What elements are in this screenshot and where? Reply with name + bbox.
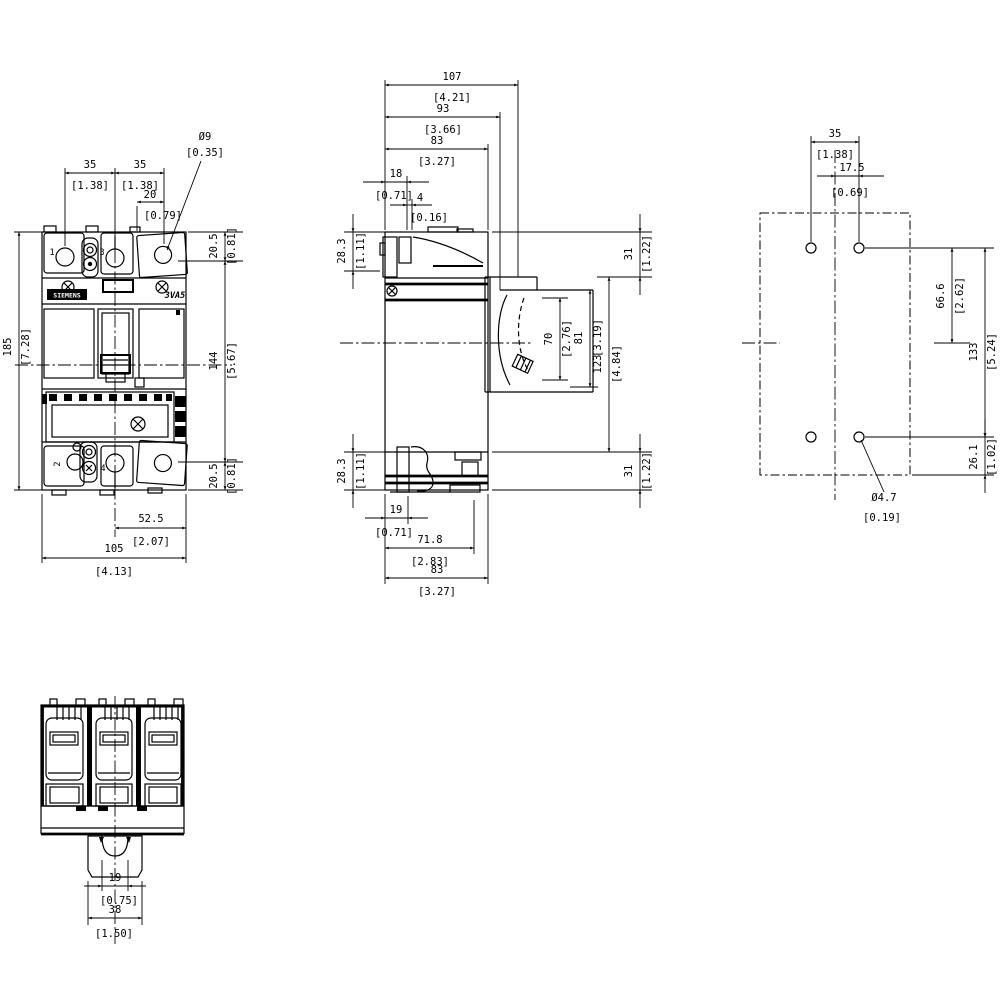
dim-side-19-in: [0.71]: [375, 527, 413, 539]
terminal-1-label: 1: [49, 248, 54, 258]
dim-front-dia-in: [0.35]: [186, 147, 224, 159]
front-lower-dashes: [49, 394, 172, 401]
terminal-4-label: 4: [100, 464, 105, 474]
front-terminal-block-top-right: [137, 232, 188, 277]
dim-mount-133-in: [5.24]: [986, 333, 998, 371]
mounting-view: 35 [1.38] 17.5 [0.69] 66.6 [2.62] 133 [5…: [742, 128, 998, 524]
dim-front-termbot-mm: 20.5: [208, 463, 220, 488]
dim-front-mid-mm: 144: [208, 352, 220, 371]
terminal-3-label: 3: [99, 248, 104, 258]
hole-leader-line: [167, 161, 201, 250]
dim-front-20-mm: 20: [144, 189, 157, 201]
dim-side-70-in: [2.76]: [561, 320, 573, 358]
dim-front-mid-in: [5.67]: [226, 342, 238, 380]
dim-mount-dia-mm: Ø4.7: [871, 492, 896, 504]
terminal-2-label: 2: [53, 461, 63, 466]
dim-side-70-mm: 70: [543, 333, 555, 346]
dimensional-drawing: SIEMENS 3VA5: [0, 0, 1000, 1000]
dim-side-4-mm: 4: [417, 192, 423, 204]
brand-label: SIEMENS: [53, 292, 80, 300]
dim-front-termtop-in: [0.81]: [226, 227, 238, 265]
dim-front-termbot-in: [0.81]: [226, 457, 238, 495]
hole-dia-leader: [861, 440, 884, 492]
dim-side-83b-mm: 83: [431, 564, 444, 576]
dim-bottom-38-mm: 38: [109, 904, 122, 916]
drawing-page: SIEMENS 3VA5: [0, 0, 1000, 1000]
dim-mount-175-in: [0.69]: [831, 187, 869, 199]
dim-side-123-in: [4.84]: [611, 345, 623, 383]
dim-side-19-mm: 19: [390, 504, 403, 516]
dim-side-31b-in: [1.22]: [641, 452, 653, 490]
bottom-view: 19 [0.75] 38 [1.50]: [41, 696, 184, 944]
dim-mount-666-mm: 66.6: [935, 283, 947, 308]
dim-side-83t-mm: 83: [431, 135, 444, 147]
dim-mount-35-in: [1.38]: [816, 149, 854, 161]
dim-front-halfw-in: [2.07]: [132, 536, 170, 548]
front-terminal-block-bottom-right: [137, 440, 188, 485]
dim-front-pitchl-in: [1.38]: [71, 180, 109, 192]
din-rail-clip: [390, 447, 481, 492]
dim-side-107-mm: 107: [443, 71, 462, 83]
bottom-dimensions: 19 [0.75] 38 [1.50]: [84, 860, 146, 940]
dim-mount-666-in: [2.62]: [954, 277, 966, 315]
dim-side-283b-mm: 28.3: [336, 458, 348, 483]
dim-mount-175-mm: 17.5: [839, 162, 864, 174]
dim-side-283t-mm: 28.3: [336, 238, 348, 263]
dim-side-283b-in: [1.11]: [355, 452, 367, 490]
dim-front-pitchl-mm: 35: [84, 159, 97, 171]
dim-front-termtop-mm: 20.5: [208, 233, 220, 258]
dim-front-pitchr-mm: 35: [134, 159, 147, 171]
model-label: 3VA5: [164, 291, 185, 301]
dim-mount-133-mm: 133: [968, 343, 980, 362]
mounting-dimensions: 35 [1.38] 17.5 [0.69] 66.6 [2.62] 133 [5…: [811, 128, 998, 524]
dim-side-93-mm: 93: [437, 103, 450, 115]
dim-mount-dia-in: [0.19]: [863, 512, 901, 524]
dim-side-4-in: [0.16]: [410, 212, 448, 224]
dim-front-width-mm: 105: [105, 543, 124, 555]
dim-side-83t-in: [3.27]: [418, 156, 456, 168]
dim-side-83b-in: [3.27]: [418, 586, 456, 598]
dim-front-height-mm: 185: [2, 338, 14, 357]
dim-front-halfw-mm: 52.5: [138, 513, 163, 525]
dim-mount-261-in: [1.02]: [986, 438, 998, 476]
dim-front-dia-mm: Ø9: [199, 131, 212, 143]
dim-side-18-in: [0.71]: [375, 190, 413, 202]
dim-mount-35-mm: 35: [829, 128, 842, 140]
dim-side-18-mm: 18: [390, 168, 403, 180]
dim-bottom-38-in: [1.50]: [95, 928, 133, 940]
dim-side-718-mm: 71.8: [417, 534, 442, 546]
dim-side-81-in: [3.19]: [592, 319, 604, 357]
dim-side-31t-in: [1.22]: [641, 235, 653, 273]
dim-front-width-in: [4.13]: [95, 566, 133, 578]
dim-side-31b-mm: 31: [623, 465, 635, 478]
front-view: SIEMENS 3VA5: [2, 131, 243, 578]
dim-bottom-19-mm: 19: [109, 872, 122, 884]
dim-front-height-in: [7.28]: [20, 328, 32, 366]
dim-front-20-in: [0.79]: [144, 210, 182, 222]
dim-side-81-mm: 81: [573, 332, 585, 345]
dim-side-283t-in: [1.11]: [355, 232, 367, 270]
side-view: 107 [4.21] 93 [3.66] 83 [3.27] 18 [0.71]…: [336, 71, 653, 598]
dim-side-123-mm: 123: [592, 355, 604, 374]
dim-mount-261-mm: 26.1: [968, 444, 980, 469]
side-dimensions: 107 [4.21] 93 [3.66] 83 [3.27] 18 [0.71]…: [336, 71, 653, 598]
dim-side-31t-mm: 31: [623, 248, 635, 261]
handle-pin: [512, 354, 533, 373]
